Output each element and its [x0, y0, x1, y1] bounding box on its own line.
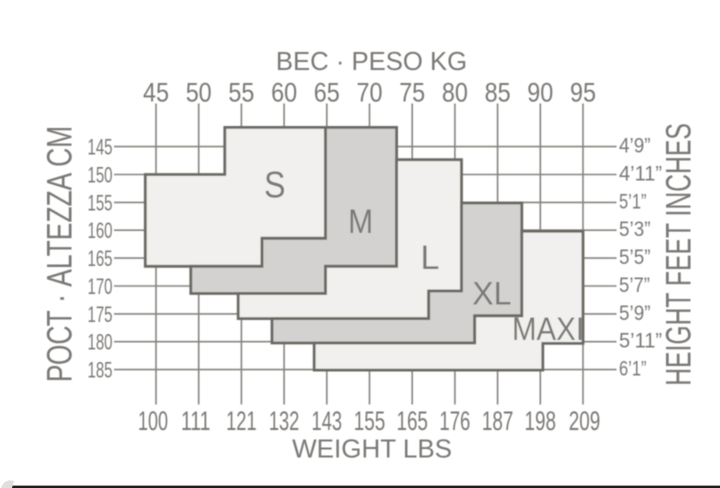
svg-text:S: S [264, 165, 286, 206]
svg-text:РОСТ · ALTEZZA CM: РОСТ · ALTEZZA CM [40, 126, 80, 382]
svg-text:70: 70 [357, 78, 383, 108]
svg-text:80: 80 [442, 78, 468, 108]
svg-text:5’11”: 5’11” [619, 330, 662, 353]
svg-text:187: 187 [482, 406, 514, 436]
svg-text:90: 90 [527, 78, 553, 108]
svg-text:L: L [421, 239, 440, 277]
svg-text:100: 100 [138, 406, 168, 436]
svg-text:5’7”: 5’7” [619, 274, 650, 297]
svg-text:4’11”: 4’11” [619, 163, 662, 186]
svg-text:M: M [348, 203, 373, 241]
svg-text:60: 60 [271, 78, 297, 108]
svg-text:75: 75 [399, 78, 425, 108]
svg-text:4’9”: 4’9” [619, 135, 651, 158]
svg-text:165: 165 [396, 406, 428, 436]
svg-text:155: 155 [88, 190, 113, 215]
svg-text:132: 132 [269, 406, 300, 436]
svg-text:198: 198 [525, 406, 557, 436]
svg-text:170: 170 [88, 274, 113, 299]
svg-text:5’1”: 5’1” [619, 190, 647, 213]
svg-text:95: 95 [570, 78, 596, 108]
svg-text:150: 150 [88, 163, 113, 188]
svg-text:180: 180 [88, 330, 113, 355]
svg-text:65: 65 [314, 78, 340, 108]
svg-text:160: 160 [88, 218, 113, 243]
svg-text:HEIGHT FEET INCHES: HEIGHT FEET INCHES [661, 123, 699, 386]
svg-text:50: 50 [186, 78, 212, 108]
svg-text:MAXI: MAXI [512, 311, 584, 347]
svg-text:ВЕС · PESO KG: ВЕС · PESO KG [276, 48, 467, 76]
svg-text:5’9”: 5’9” [619, 302, 651, 325]
svg-text:WEIGHT LBS: WEIGHT LBS [292, 434, 452, 464]
svg-text:85: 85 [485, 78, 511, 108]
svg-text:121: 121 [226, 406, 257, 436]
svg-text:209: 209 [569, 406, 601, 436]
svg-text:5’3”: 5’3” [619, 218, 651, 241]
svg-text:176: 176 [439, 406, 470, 436]
svg-text:165: 165 [88, 246, 113, 271]
svg-text:145: 145 [88, 135, 113, 160]
svg-text:143: 143 [312, 406, 343, 436]
svg-text:155: 155 [354, 406, 386, 436]
svg-text:55: 55 [228, 78, 254, 108]
svg-text:6’1”: 6’1” [619, 358, 647, 381]
svg-text:45: 45 [143, 78, 169, 108]
svg-text:111: 111 [181, 406, 211, 436]
svg-text:5’5”: 5’5” [619, 246, 651, 269]
svg-text:185: 185 [88, 358, 113, 383]
svg-text:175: 175 [88, 302, 113, 327]
svg-text:XL: XL [472, 276, 511, 312]
